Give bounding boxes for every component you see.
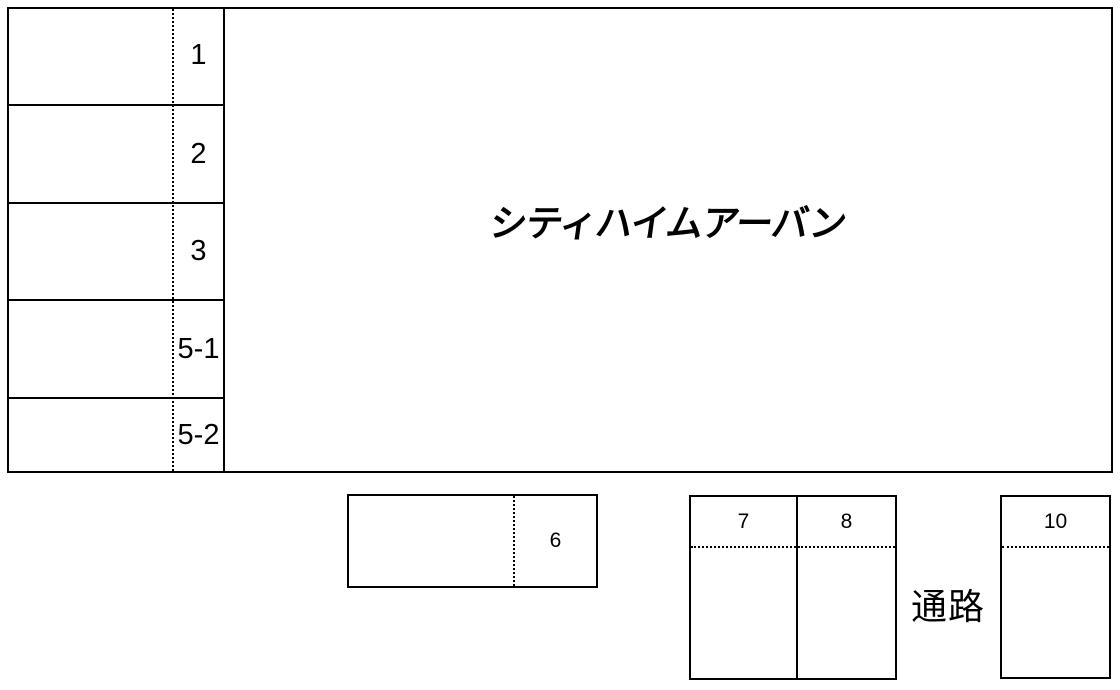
parking-space-7-label: 7 — [691, 497, 796, 548]
parking-space-10-label: 10 — [1002, 497, 1109, 548]
building-name-text: シティハイムアーバン — [487, 200, 849, 248]
parking-space-3-label: 3 — [174, 204, 223, 299]
parking-lot-diagram: 1 2 3 5-1 5-2 シティハイムアーバン 6 7 8 通路 10 — [0, 0, 1120, 690]
parking-space-8-label: 8 — [798, 497, 895, 548]
parking-space-10: 10 — [1000, 495, 1111, 679]
parking-space-1-label: 1 — [174, 7, 223, 104]
parking-space-5-1-label: 5-1 — [174, 301, 223, 397]
parking-space-8-area — [798, 548, 895, 678]
parking-space-5-2-label: 5-2 — [174, 399, 223, 471]
parking-space-2-label: 2 — [174, 106, 223, 202]
parking-space-6: 6 — [347, 494, 598, 588]
parking-block-7-8: 7 8 — [689, 495, 897, 680]
parking-space-8: 8 — [798, 497, 895, 678]
parking-space-7: 7 — [691, 497, 798, 678]
aisle-label: 通路 — [911, 589, 985, 625]
parking-space-7-area — [691, 548, 796, 678]
parking-space-10-area — [1002, 548, 1109, 677]
parking-space-6-label: 6 — [515, 496, 596, 586]
building-name: シティハイムアーバン — [224, 200, 1112, 248]
